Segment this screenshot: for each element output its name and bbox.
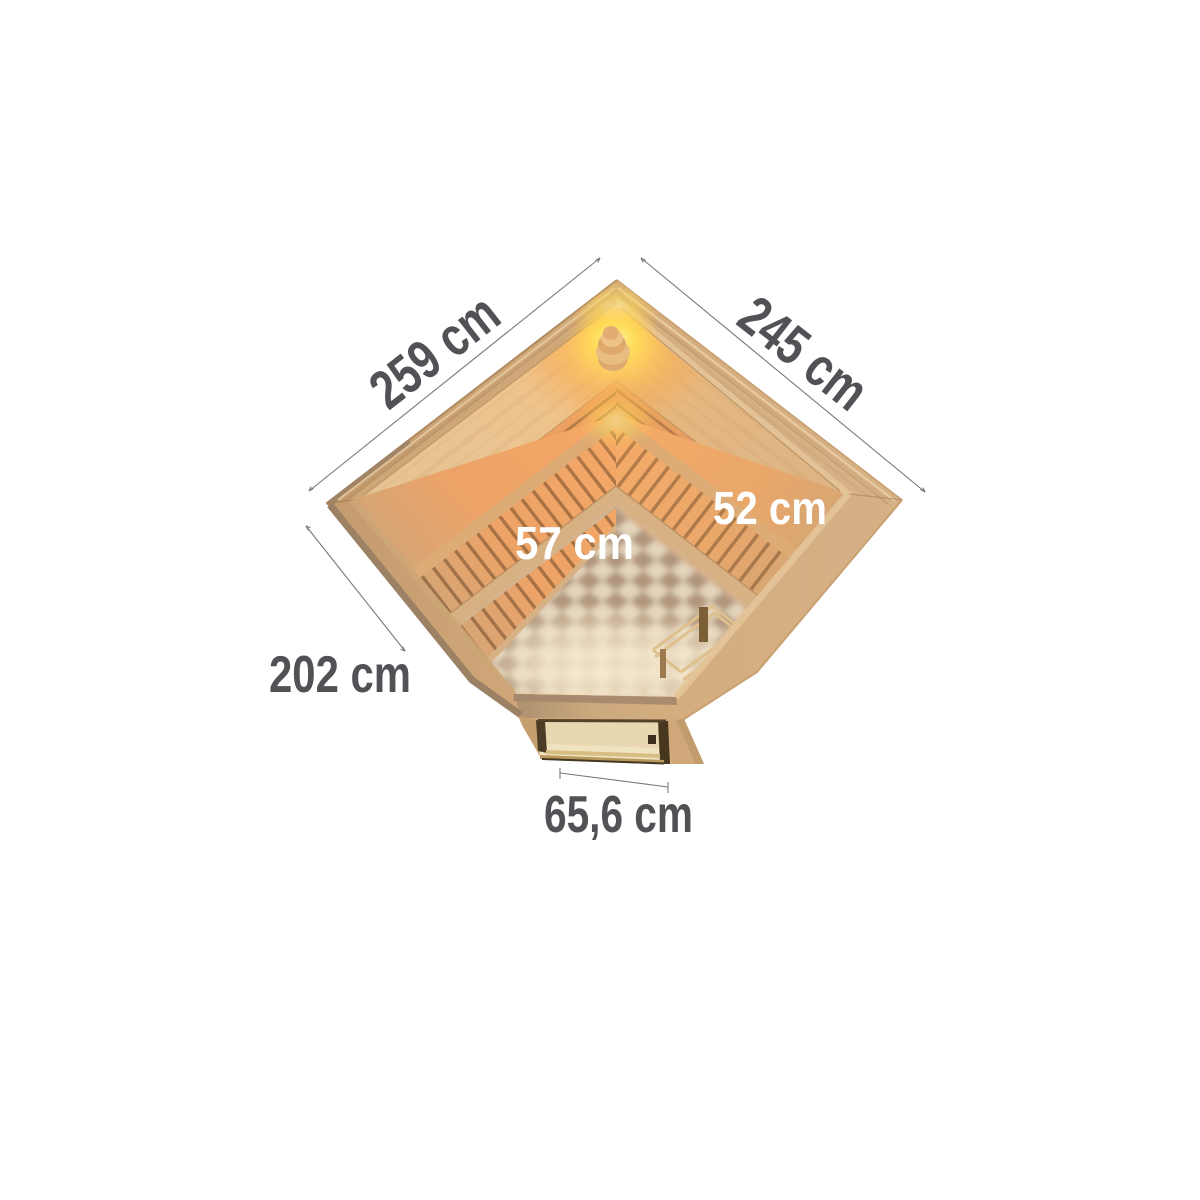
svg-text:202 cm: 202 cm bbox=[269, 646, 411, 704]
svg-text:52 cm: 52 cm bbox=[713, 482, 827, 534]
svg-text:65,6 cm: 65,6 cm bbox=[544, 786, 693, 844]
svg-text:57 cm: 57 cm bbox=[515, 517, 634, 569]
